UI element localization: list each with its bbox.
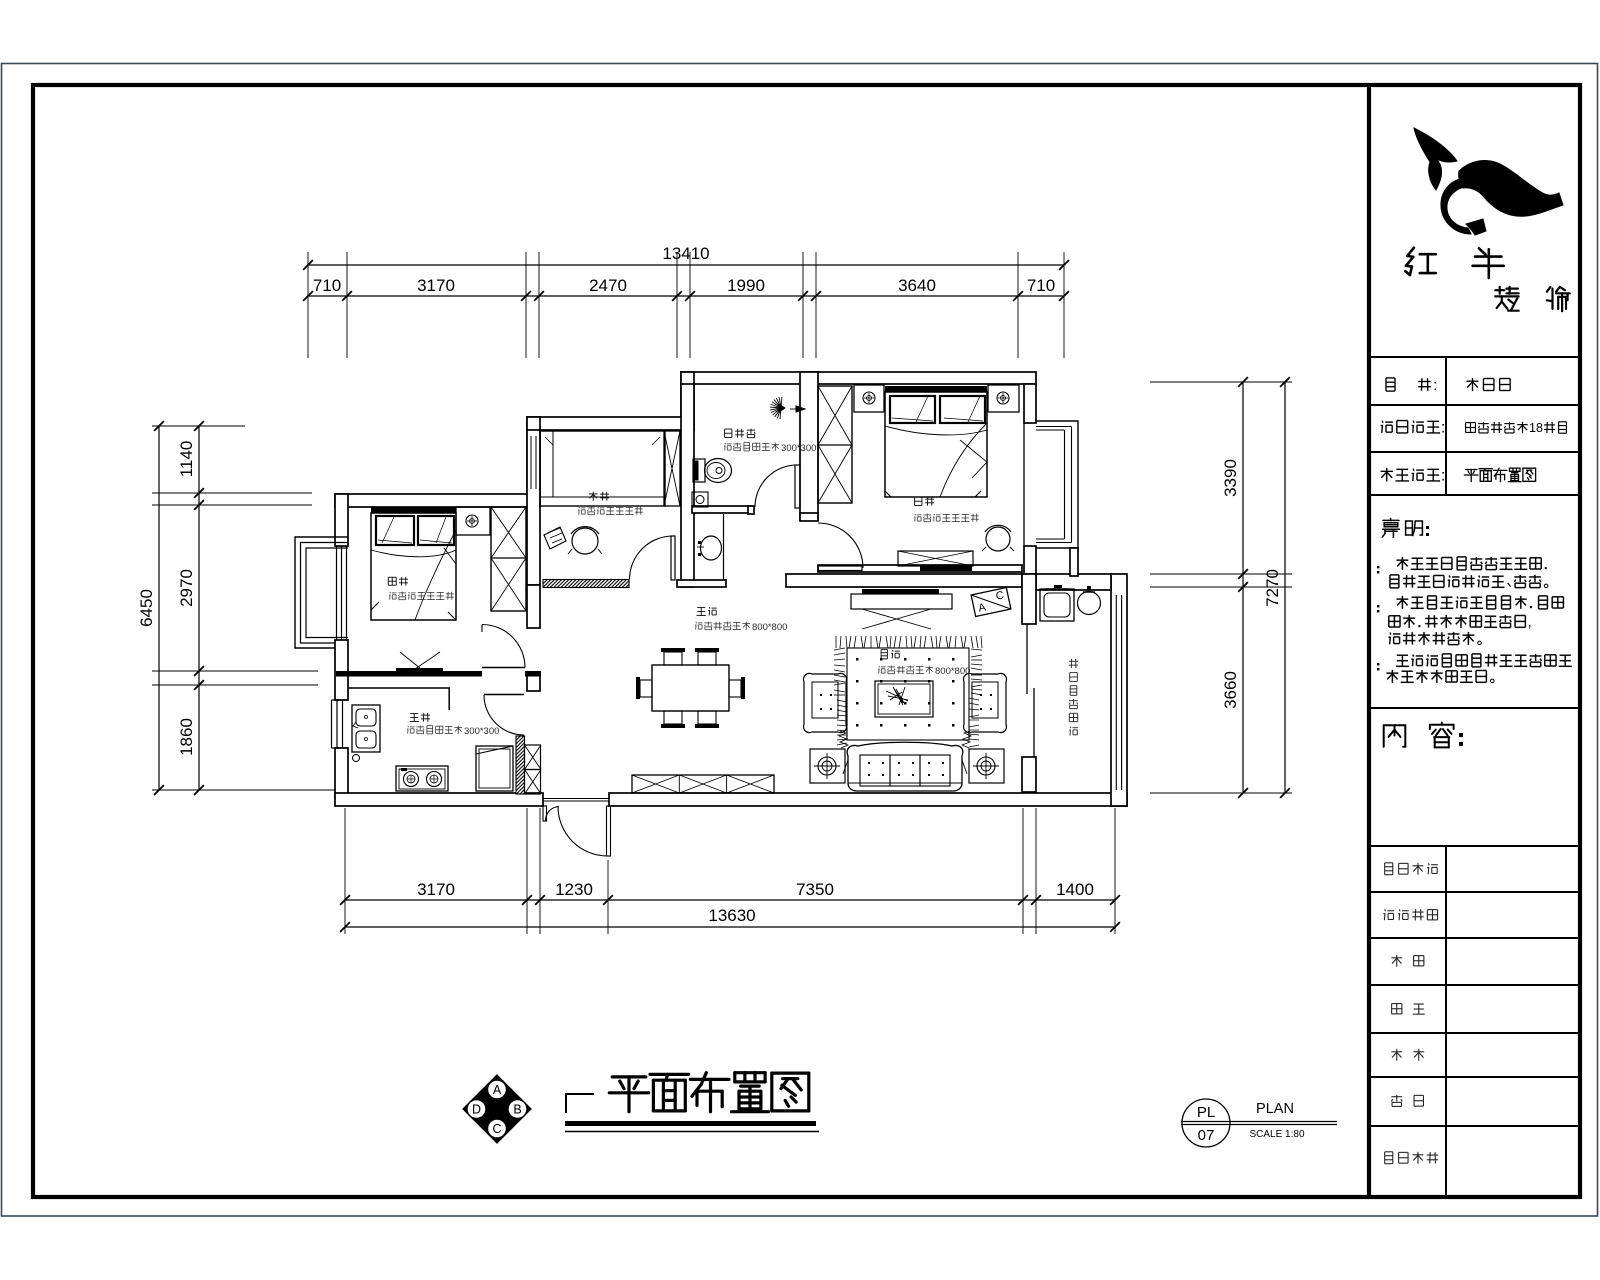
svg-text:,: , (1528, 615, 1532, 631)
svg-text:1140: 1140 (177, 441, 196, 478)
svg-text:7270: 7270 (1263, 569, 1282, 607)
svg-text:1990: 1990 (727, 276, 765, 295)
svg-text:800*800: 800*800 (935, 666, 970, 677)
svg-text:2470: 2470 (589, 276, 627, 295)
svg-text:710: 710 (1027, 276, 1055, 295)
svg-text:D: D (472, 1103, 481, 1117)
svg-text:1400: 1400 (1056, 880, 1094, 899)
svg-text:1230: 1230 (555, 880, 593, 899)
svg-text:3640: 3640 (898, 276, 936, 295)
svg-text:13630: 13630 (708, 906, 755, 925)
svg-text:800*800: 800*800 (752, 622, 787, 633)
svg-text:1860: 1860 (177, 718, 196, 756)
svg-text:3170: 3170 (417, 880, 455, 899)
svg-text::: : (1441, 419, 1445, 436)
svg-text:710: 710 (313, 276, 341, 295)
svg-text:C: C (492, 1122, 501, 1136)
svg-text::: : (1433, 377, 1437, 394)
svg-text:6450: 6450 (137, 589, 156, 627)
svg-text::: : (1441, 467, 1445, 484)
svg-text:18: 18 (1529, 421, 1543, 435)
svg-text:PLAN: PLAN (1256, 1101, 1294, 1117)
svg-text:2970: 2970 (177, 569, 196, 607)
svg-text:07: 07 (1198, 1127, 1215, 1144)
svg-text:3660: 3660 (1221, 671, 1240, 709)
svg-text:SCALE 1:80: SCALE 1:80 (1249, 1129, 1304, 1140)
svg-text:3170: 3170 (417, 276, 455, 295)
svg-text:B: B (513, 1103, 521, 1117)
svg-text:7350: 7350 (796, 880, 834, 899)
svg-text:300*300: 300*300 (781, 443, 816, 454)
svg-text:A: A (493, 1083, 502, 1097)
svg-text:300*300: 300*300 (464, 726, 499, 737)
svg-text:3390: 3390 (1221, 459, 1240, 497)
svg-text:13410: 13410 (662, 244, 709, 263)
svg-text:PL: PL (1197, 1104, 1215, 1121)
